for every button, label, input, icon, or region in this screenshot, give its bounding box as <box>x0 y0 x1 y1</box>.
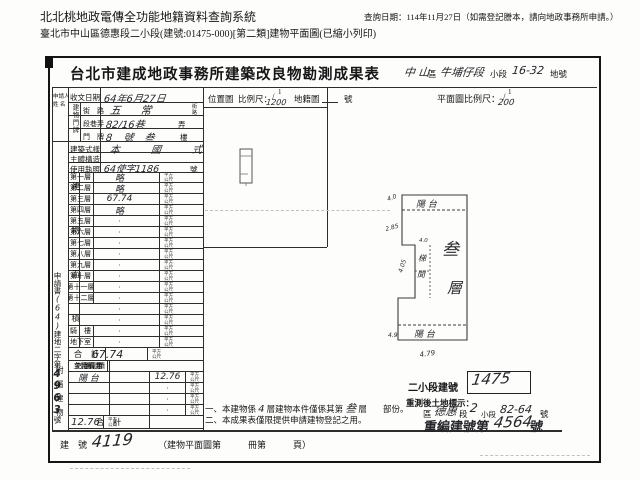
area-unit-label: 平方公尺 <box>160 271 177 281</box>
area-unit-label: 平方公尺 <box>186 394 203 404</box>
system-title: 北北桃地政電傳全功能地籍資料查詢系統 <box>40 8 256 25</box>
annex-structure-value <box>110 383 150 393</box>
area-unit-label: 平方公尺 <box>160 337 177 347</box>
floor-row: 第九層·平方公尺 <box>68 260 203 271</box>
floor-row: 騎 樓·平方公尺 <box>68 326 203 337</box>
note1-printed-1: 一、本建物係 <box>205 404 256 414</box>
area-unit-label: 平方公尺 <box>186 405 203 415</box>
area-unit-label: 平方公尺 <box>160 260 177 270</box>
plan-floor-char-1: 叁 <box>442 240 461 260</box>
area-unit-label: 平方公尺 <box>160 304 177 314</box>
area-unit-label: 平方公尺 <box>160 249 177 259</box>
annex-total-label: 合 計 <box>68 416 150 428</box>
annex-use-value <box>68 405 110 415</box>
floor-row: 第六層·平方公尺 <box>68 227 203 238</box>
address-group-label: 建物門牌 <box>69 104 79 142</box>
plan-dim-bottom: 4.79 <box>419 349 436 359</box>
building-no-value: 4119 <box>91 430 134 452</box>
floor-label: 第一層 <box>68 172 94 182</box>
floor-area-value: · <box>80 304 160 314</box>
applicant-label-1: 申請人 <box>53 92 70 100</box>
location-scale-denominator: 1200 <box>265 98 286 107</box>
building-style-value: 本 國 式 <box>109 141 217 156</box>
floor-row: 第一層略平方公尺 <box>68 172 203 183</box>
area-unit-label: 平方公尺 <box>160 227 177 237</box>
plan-stair-char-2: 間 <box>417 270 426 279</box>
plan-scale-numerator: 1 <box>508 88 512 96</box>
scan-artifact-blob <box>45 56 53 68</box>
annex-area-value: 12.76 <box>150 372 186 382</box>
land-record-viewer-page: 北北桃地政電傳全功能地籍資料查詢系統 查詢日期：114年11月27日（如需登記謄… <box>0 0 640 480</box>
plan-balcony-top-label: 陽 台 <box>416 199 438 210</box>
plan-dim-mid-a: 4.05 <box>397 259 408 274</box>
annex-row: ·平方公尺 <box>68 405 203 416</box>
floor-row: ·平方公尺 <box>68 315 203 326</box>
district-label: 區 <box>428 68 437 80</box>
annex-structure-value <box>110 405 150 415</box>
note1-printed-4: 部份。 <box>383 404 409 414</box>
floor-area-value: · <box>80 315 160 325</box>
annex-structure-value <box>110 394 150 404</box>
plan-dim-left: 2.85 <box>386 223 400 233</box>
applicant-label-2: 姓 名 <box>53 100 65 108</box>
floor-total-row: 合 計67.74平方公尺 <box>68 348 203 361</box>
annex-total-row: 合 計12.76平方公尺 <box>68 416 203 429</box>
area-unit-label: 平方公尺 <box>160 194 177 204</box>
application-no-hand1: (64) <box>53 295 62 331</box>
annex-use-value <box>68 394 110 404</box>
location-box-right-line <box>327 87 328 247</box>
area-unit-label: 平方公尺 <box>160 183 177 193</box>
area-unit-label: 平方公尺 <box>148 348 165 360</box>
plan-stair-char-1: 梯 <box>418 254 427 263</box>
plan-balcony-bottom-label: 陽 台 <box>414 329 436 340</box>
building-no-label: 建 號 <box>60 438 87 451</box>
renumber-suffix: 號 <box>529 416 544 435</box>
floor-row: 第二層略平方公尺 <box>68 183 203 194</box>
area-unit-label: 平方公尺 <box>160 205 177 215</box>
floor-row: 第三層67.74平方公尺 <box>68 194 203 205</box>
plan-floor-char-2: 層 <box>447 279 464 297</box>
door-label: 門 牌 <box>83 132 104 142</box>
street-tiny-bottom: 路 <box>192 109 197 116</box>
floor-row: 第五層·平方公尺 <box>68 216 203 227</box>
floor-row: 第四層略平方公尺 <box>68 205 203 216</box>
cadastre-no-label: 號 <box>344 93 353 105</box>
annex-area-value: · <box>150 383 186 393</box>
area-unit-label: 平方公尺 <box>186 383 203 393</box>
application-no-prefix: 申請書 <box>53 272 62 295</box>
table-top-line <box>52 87 597 88</box>
lane-label: 段巷弄 <box>83 119 104 129</box>
annex-use-value <box>68 383 110 393</box>
annex-area-value: · <box>150 394 186 404</box>
scan-dash-artifact <box>480 455 590 456</box>
note1-printed-2: 層建物本件僅係其第 <box>267 404 344 414</box>
note-2: 二、本成果表僅限提供申請建物登記之用。 <box>205 414 367 426</box>
annex-area-value: · <box>150 405 186 415</box>
area-unit-label: 平方公尺 <box>160 326 177 336</box>
street-label: 街 路 <box>83 106 104 116</box>
location-scale-numerator: 1 <box>278 88 282 96</box>
floor-row: 第十一層·平方公尺 <box>68 282 203 293</box>
sub-col-line <box>80 102 81 141</box>
renumber-hand: 4564 <box>492 412 534 431</box>
floor-row: 地下室·平方公尺 <box>68 337 203 348</box>
area-unit-label: 平方公尺 <box>160 293 177 303</box>
district-hand: 中 山 <box>403 64 430 80</box>
area-group-label: 建物面積 <box>70 182 81 347</box>
parcel-hand: 16-32 <box>511 64 545 77</box>
area-unit-label: 平方公尺 <box>160 172 177 182</box>
cadastre-map-label: 地籍圖 <box>294 93 320 105</box>
annex-row: ·平方公尺 <box>68 383 203 394</box>
floor-row: 第八層·平方公尺 <box>68 249 203 260</box>
location-box-bottom-line <box>203 247 327 248</box>
document-subtitle: 臺北市中山區德惠段二小段(建號:01475-000)[第二類]建物平面圖(已縮小… <box>40 25 376 40</box>
location-box-top-line <box>203 107 327 108</box>
floor-area-table: 第一層略平方公尺第二層略平方公尺第三層67.74平方公尺第四層略平方公尺第五層·… <box>68 172 203 361</box>
form-title: 台北市建成地政事務所建築改良物勘測成果表 <box>70 63 380 84</box>
table-col-line-2 <box>203 87 204 430</box>
cadastre-no-blank <box>322 102 338 103</box>
parcel-label: 地號 <box>550 68 567 80</box>
scan-dash-artifact <box>205 210 390 211</box>
plan-dim-mid-b: 4.0 <box>419 238 428 244</box>
annex-row: ·平方公尺 <box>68 394 203 405</box>
location-map-label: 位置圖 <box>208 93 234 105</box>
area-unit-label: 平方公尺 <box>160 216 177 226</box>
annex-building-table: 使用種類主體構造面 積陽 台12.76平方公尺·平方公尺·平方公尺·平方公尺合 … <box>68 361 203 429</box>
annex-use-value: 陽 台 <box>68 372 110 382</box>
scan-dash-artifact <box>70 468 190 469</box>
receipt-date-label: 收文日期 <box>70 92 100 103</box>
plan-scale-denominator: 200 <box>497 98 514 108</box>
label-col-line <box>100 87 101 172</box>
annex-header-area: 面 積 <box>68 361 121 371</box>
plan-scale-label: 平面圖比例尺： <box>437 92 500 105</box>
annex-row: 陽 台12.76平方公尺 <box>68 372 203 383</box>
location-map-sketch <box>234 144 264 190</box>
area-unit-label: 平方公尺 <box>160 315 177 325</box>
annex-header-row: 使用種類主體構造面 積 <box>68 361 203 372</box>
area-unit-label: 平方公尺 <box>160 282 177 292</box>
query-date: 查詢日期：114年11月27日（如需登記謄本，請向地政事務所申請。） <box>364 11 618 23</box>
floor-row: 第十二層·平方公尺 <box>68 293 203 304</box>
area-unit-label: 平方公尺 <box>160 238 177 248</box>
annex-structure-value <box>110 372 150 382</box>
section-hand: 牛埔仔段 <box>439 64 485 80</box>
plan-dim-bottom-left: 4.9 <box>388 332 398 339</box>
resurvey-subsection-label: 二小段建號 <box>408 379 458 394</box>
note1-printed-3: 層 <box>358 404 367 414</box>
lane-suffix: 弄 <box>178 119 186 130</box>
application-no-mid: 建地二字第 <box>53 331 62 369</box>
plan-dim-top: 4.0 <box>386 193 398 203</box>
subsection-label: 小段 <box>490 68 507 80</box>
floor-row: 第十層·平方公尺 <box>68 271 203 282</box>
renumber-prefix: 重編建號第 <box>423 416 490 435</box>
annex-group-label: 附屬建物 <box>54 366 65 428</box>
floor-row: ·平方公尺 <box>68 304 203 315</box>
floor-plan-drawing: 4.0 陽 台 2.85 4.0 梯 間 4.05 叁 層 4.9 陽 台 4.… <box>386 183 504 363</box>
area-unit-label: 平方公尺 <box>186 372 203 382</box>
book-ref: （建物平面圖第 冊第 頁） <box>158 438 311 451</box>
floor-row: 第七層·平方公尺 <box>68 238 203 249</box>
resurvey-subsection-value: 1475 <box>470 369 511 389</box>
